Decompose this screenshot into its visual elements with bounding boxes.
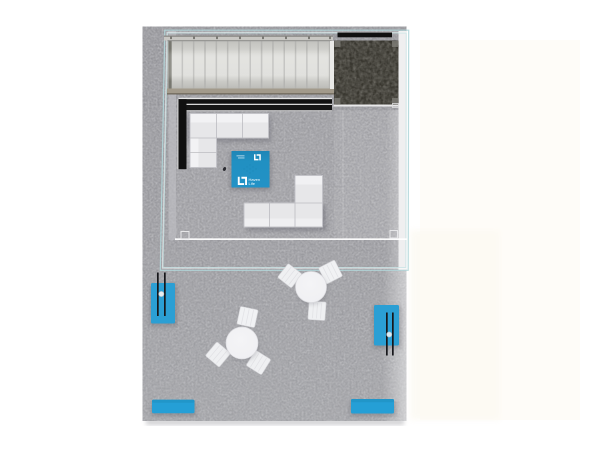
svg-text:Life: Life — [249, 181, 256, 186]
